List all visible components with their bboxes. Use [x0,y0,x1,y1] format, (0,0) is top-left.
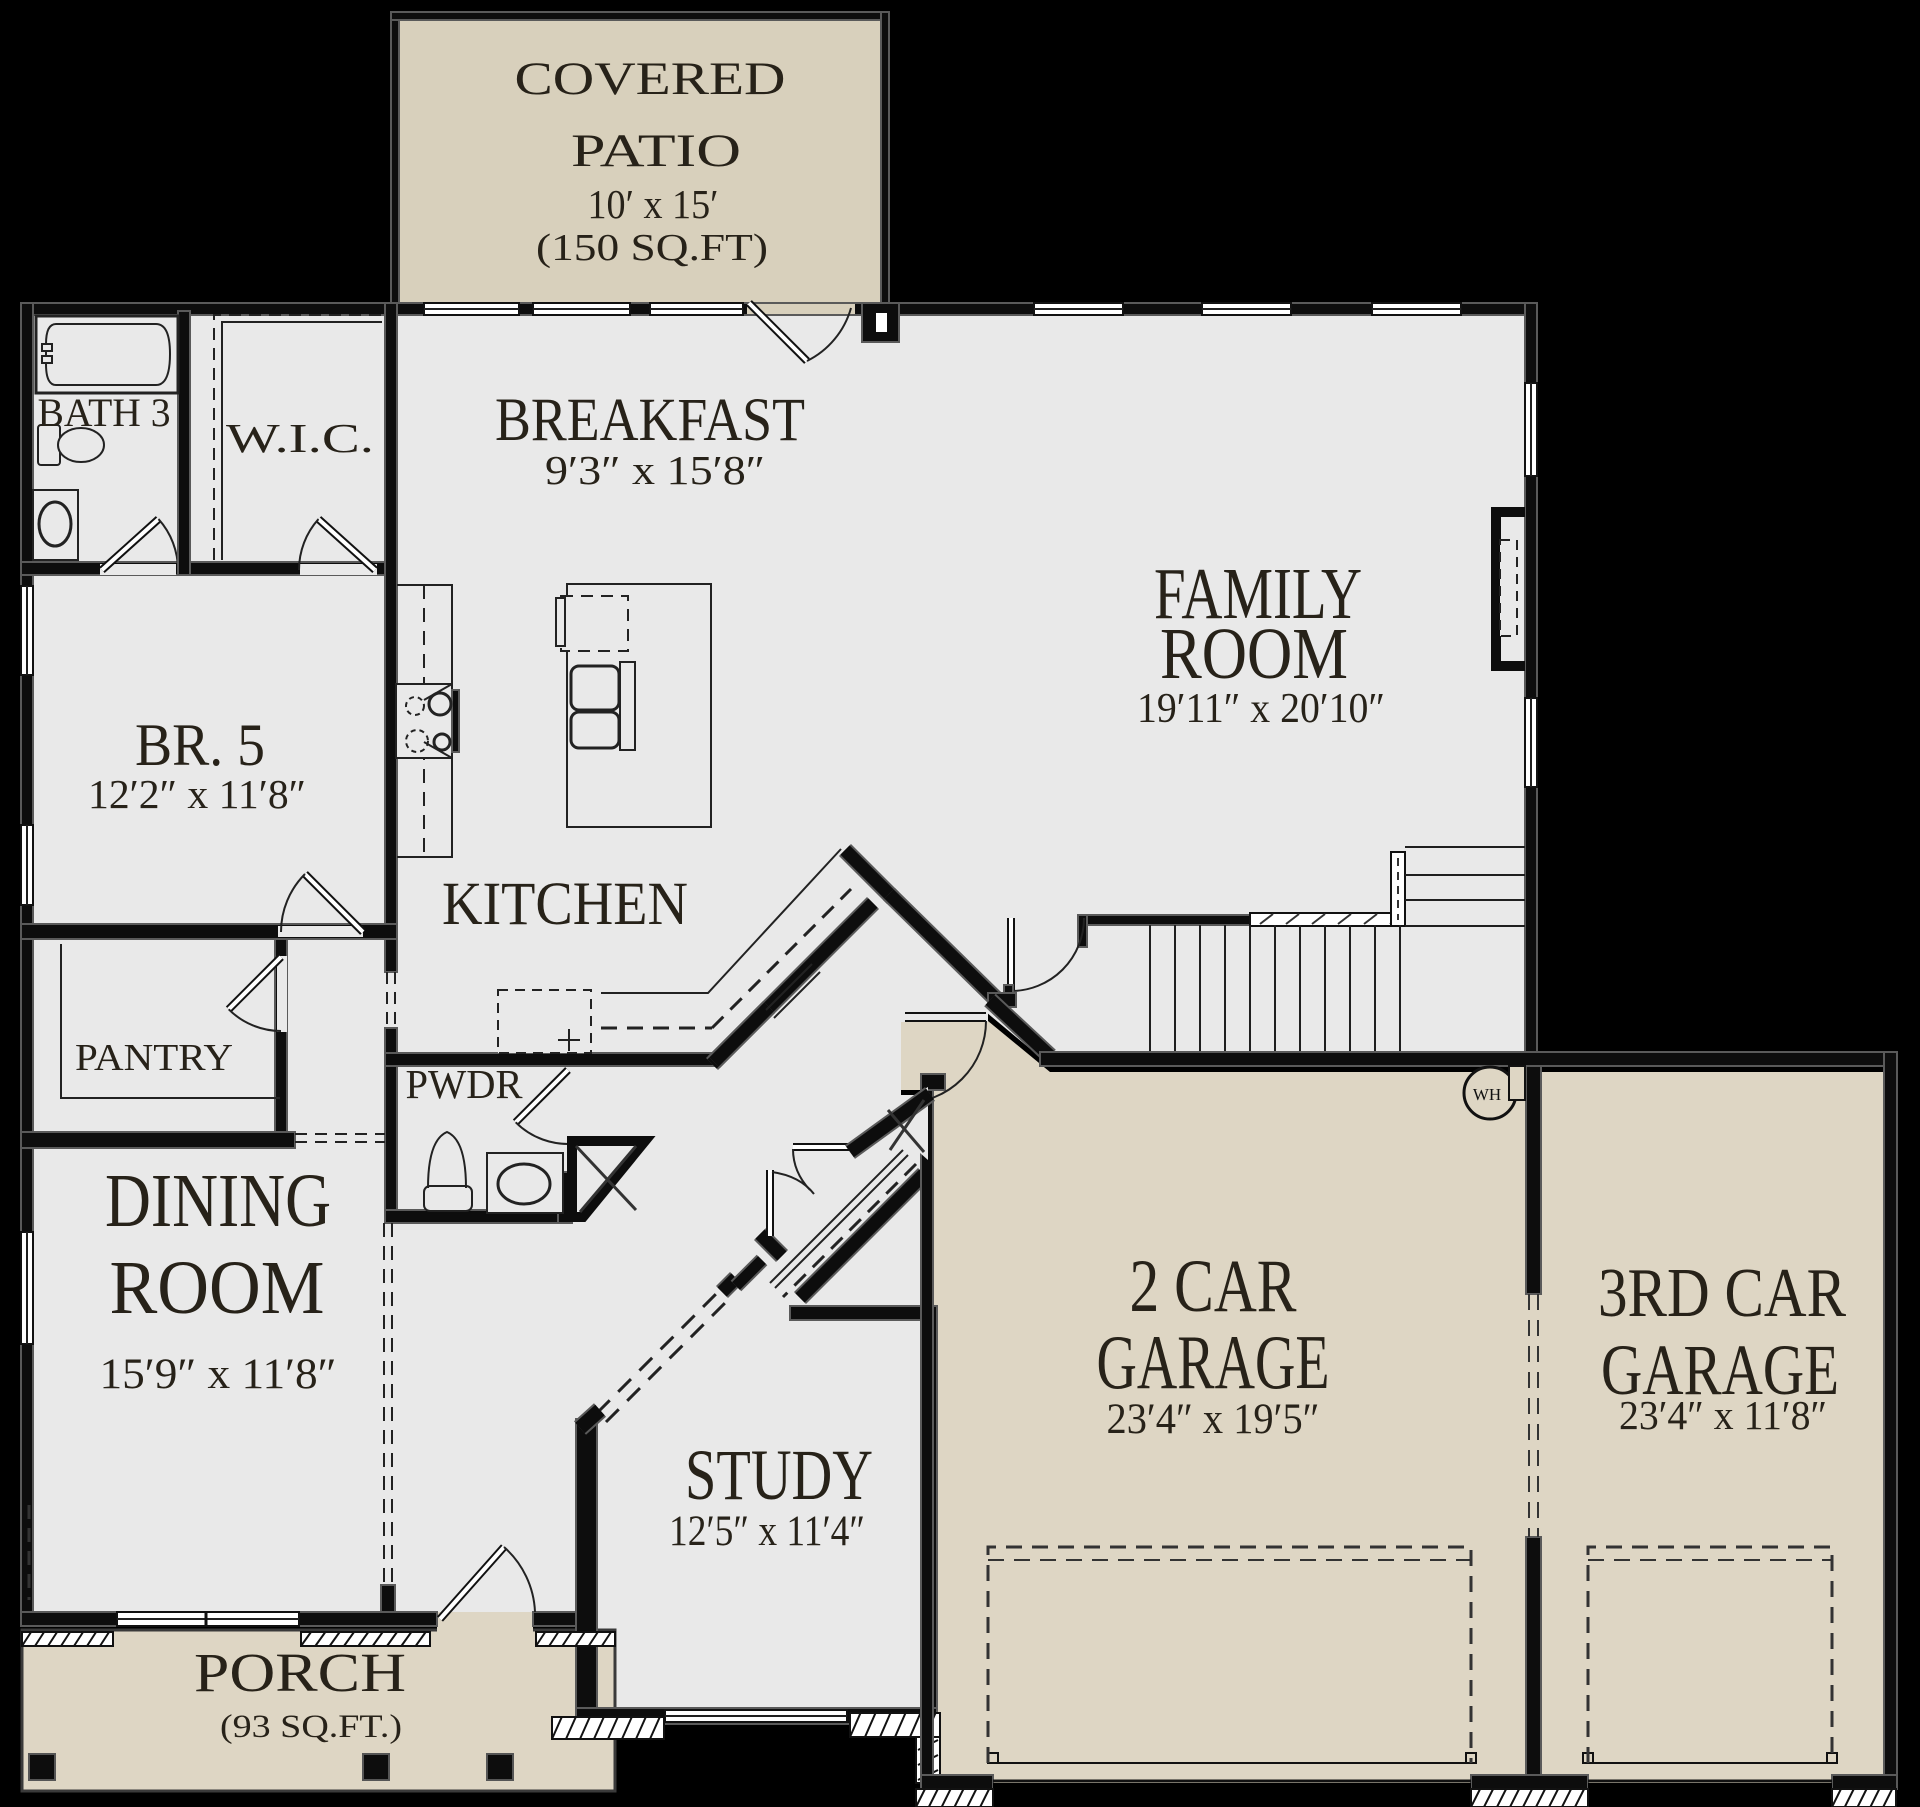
svg-text:23′4″ x 11′8″: 23′4″ x 11′8″ [1619,1392,1827,1438]
svg-text:2 CAR: 2 CAR [1130,1245,1297,1328]
svg-text:BREAKFAST: BREAKFAST [495,387,805,454]
svg-text:12′2″ x 11′8″: 12′2″ x 11′8″ [88,771,306,817]
svg-text:W.I.C.: W.I.C. [226,415,374,461]
svg-text:KITCHEN: KITCHEN [442,871,688,938]
svg-text:DINING: DINING [105,1159,331,1243]
svg-text:10′ x 15′: 10′ x 15′ [588,181,719,227]
svg-text:ROOM: ROOM [1160,613,1348,694]
svg-text:PATIO: PATIO [571,125,741,177]
svg-text:23′4″ x 19′5″: 23′4″ x 19′5″ [1107,1396,1320,1443]
svg-text:PANTRY: PANTRY [75,1037,233,1079]
svg-text:WH: WH [1473,1085,1501,1104]
svg-text:COVERED: COVERED [515,53,786,105]
svg-text:BATH 3: BATH 3 [38,390,171,435]
svg-text:3RD CAR: 3RD CAR [1598,1255,1846,1332]
svg-text:ROOM: ROOM [110,1246,325,1330]
svg-text:GARAGE: GARAGE [1097,1319,1330,1405]
svg-text:(93 SQ.FT.): (93 SQ.FT.) [220,1709,402,1745]
svg-text:BR. 5: BR. 5 [135,712,265,778]
svg-text:19′11″ x 20′10″: 19′11″ x 20′10″ [1137,686,1385,732]
svg-text:12′5″ x 11′4″: 12′5″ x 11′4″ [669,1508,865,1555]
svg-text:PWDR: PWDR [406,1061,524,1107]
svg-text:9′3″ x 15′8″: 9′3″ x 15′8″ [545,447,765,493]
svg-text:15′9″ x 11′8″: 15′9″ x 11′8″ [100,1351,337,1398]
svg-text:STUDY: STUDY [685,1435,873,1515]
svg-text:PORCH: PORCH [194,1642,406,1703]
svg-text:(150 SQ.FT): (150 SQ.FT) [536,227,768,269]
